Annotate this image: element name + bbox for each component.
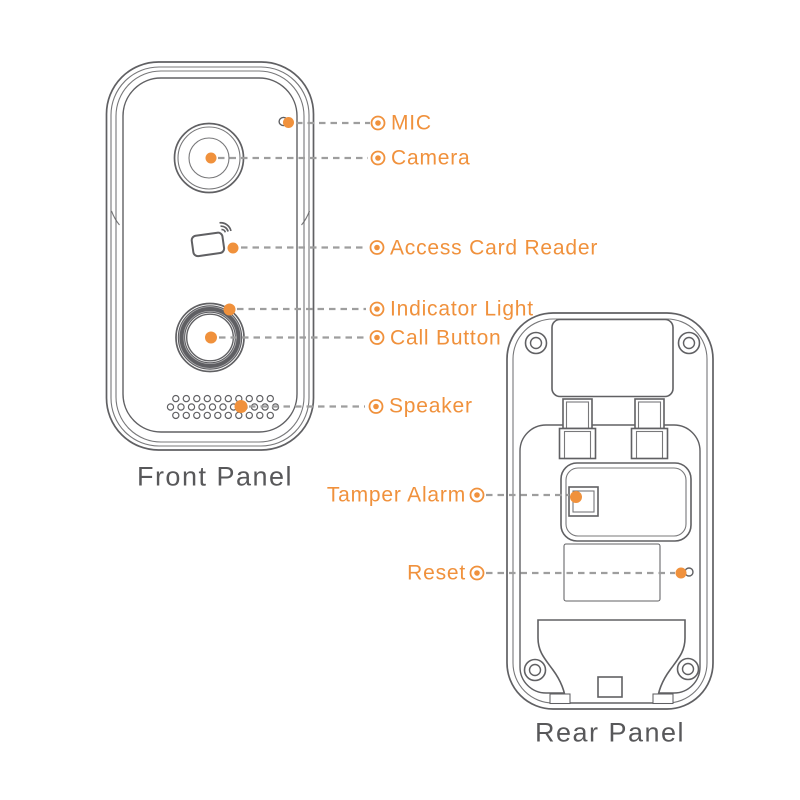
right-seam-notch	[302, 211, 310, 225]
tamper-point	[570, 491, 582, 503]
bullseye-marker	[372, 152, 385, 165]
bullseye-marker	[371, 241, 384, 254]
label-mic: MIC	[391, 113, 432, 134]
bracket-slot	[598, 677, 622, 697]
bullseye-marker	[372, 117, 385, 130]
front-panel-caption: Front Panel	[105, 464, 325, 491]
indicator-light-point	[224, 304, 236, 316]
camera-point	[206, 153, 217, 164]
label-reset: Reset	[407, 563, 466, 584]
bracket-foot-right	[653, 694, 673, 704]
doorbell-parts-diagram: MIC Camera Access Card Reader Indicator …	[0, 0, 800, 800]
label-call-button: Call Button	[390, 327, 502, 348]
call-button-point	[205, 332, 217, 344]
label-indicator-light: Indicator Light	[390, 298, 534, 319]
reset-point	[676, 568, 687, 579]
speaker-point	[235, 400, 248, 413]
bullseye-marker	[371, 303, 384, 316]
bracket-foot-left	[550, 694, 570, 704]
access-card-point	[228, 243, 239, 254]
bullseye-marker	[471, 489, 484, 502]
mounting-bracket	[538, 620, 685, 704]
front-panel-drawing	[107, 62, 314, 450]
front-panel-outline	[107, 62, 314, 450]
label-speaker: Speaker	[389, 396, 473, 417]
label-access-card-reader: Access Card Reader	[390, 237, 598, 258]
bullseye-marker	[471, 567, 484, 580]
clip-tabs	[560, 399, 668, 459]
tamper-compartment	[561, 463, 691, 541]
rear-panel-drawing	[507, 313, 713, 709]
label-tamper-alarm: Tamper Alarm	[327, 485, 466, 506]
rfid-card-icon	[190, 221, 234, 256]
bullseye-marker	[370, 400, 383, 413]
label-camera: Camera	[391, 148, 471, 169]
mic-point	[283, 117, 294, 128]
rear-panel-caption: Rear Panel	[500, 720, 720, 747]
bullseye-marker	[371, 331, 384, 344]
wiring-compartment	[552, 320, 673, 397]
